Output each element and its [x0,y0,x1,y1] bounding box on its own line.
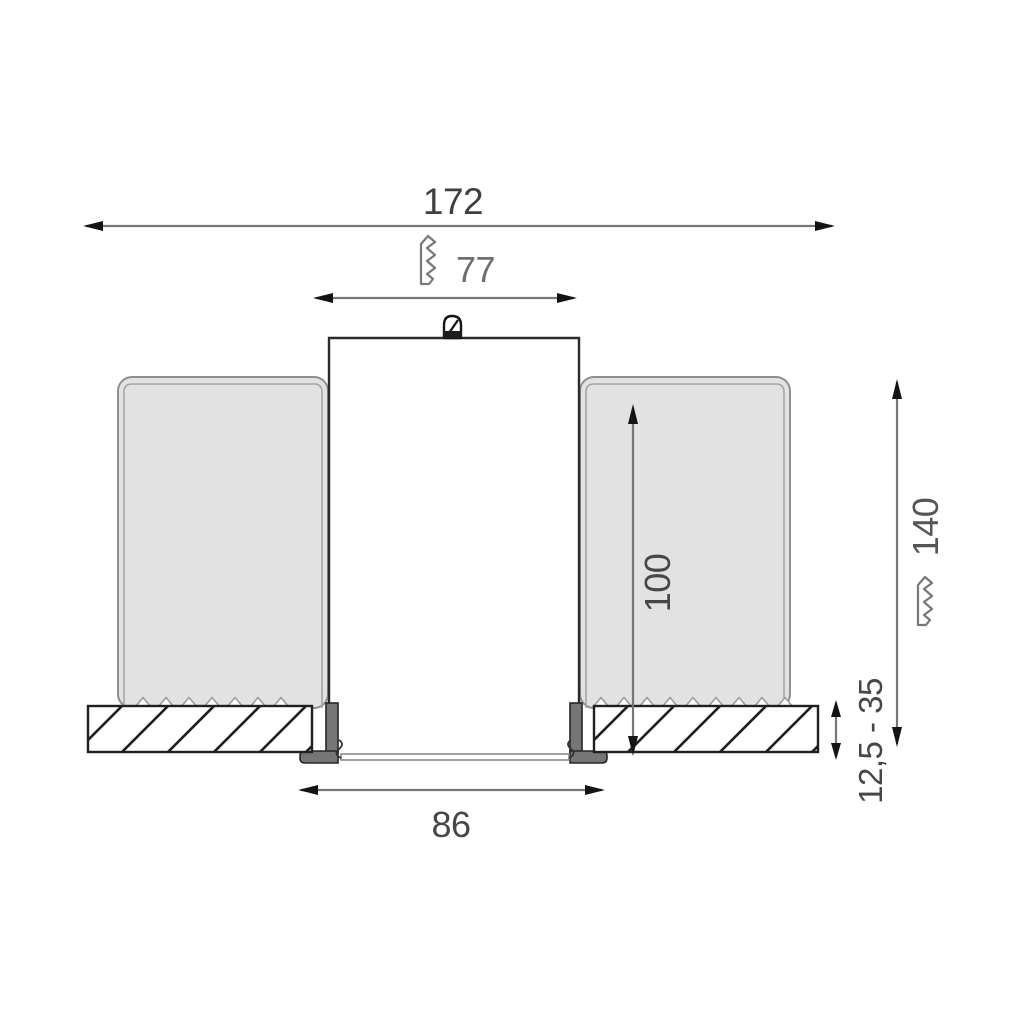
dimension-housing-width: 77 [313,236,577,303]
mounting-clip-icon [443,316,462,338]
label-recess-depth: 100 [637,554,678,613]
dimension-ceiling-thickness: 12,5 - 35 [831,678,889,804]
break-symbol-right [918,577,932,625]
dimension-drawing: 172 77 100 140 12,5 - 35 86 [0,0,1024,1024]
spring-clip-left-body [118,377,328,708]
label-installation-depth: 140 [905,498,946,557]
dimension-installation-depth: 140 [892,379,946,747]
spring-clip-right [580,377,793,708]
ceiling-panel-left [88,706,312,752]
label-overall-width: 172 [423,181,483,222]
drawing-canvas: 172 77 100 140 12,5 - 35 86 [0,0,1024,1024]
spring-clip-right-body [580,377,790,708]
dimension-overall-width: 172 [83,181,835,231]
spring-clip-left [118,377,328,708]
dimension-cutout-width: 86 [298,785,605,845]
ceiling-panel-right [594,706,818,752]
label-ceiling-thickness: 12,5 - 35 [852,678,889,804]
break-symbol-top [421,236,435,284]
label-cutout-width: 86 [431,804,470,845]
label-housing-width: 77 [456,249,495,290]
lamp-housing [329,338,579,754]
